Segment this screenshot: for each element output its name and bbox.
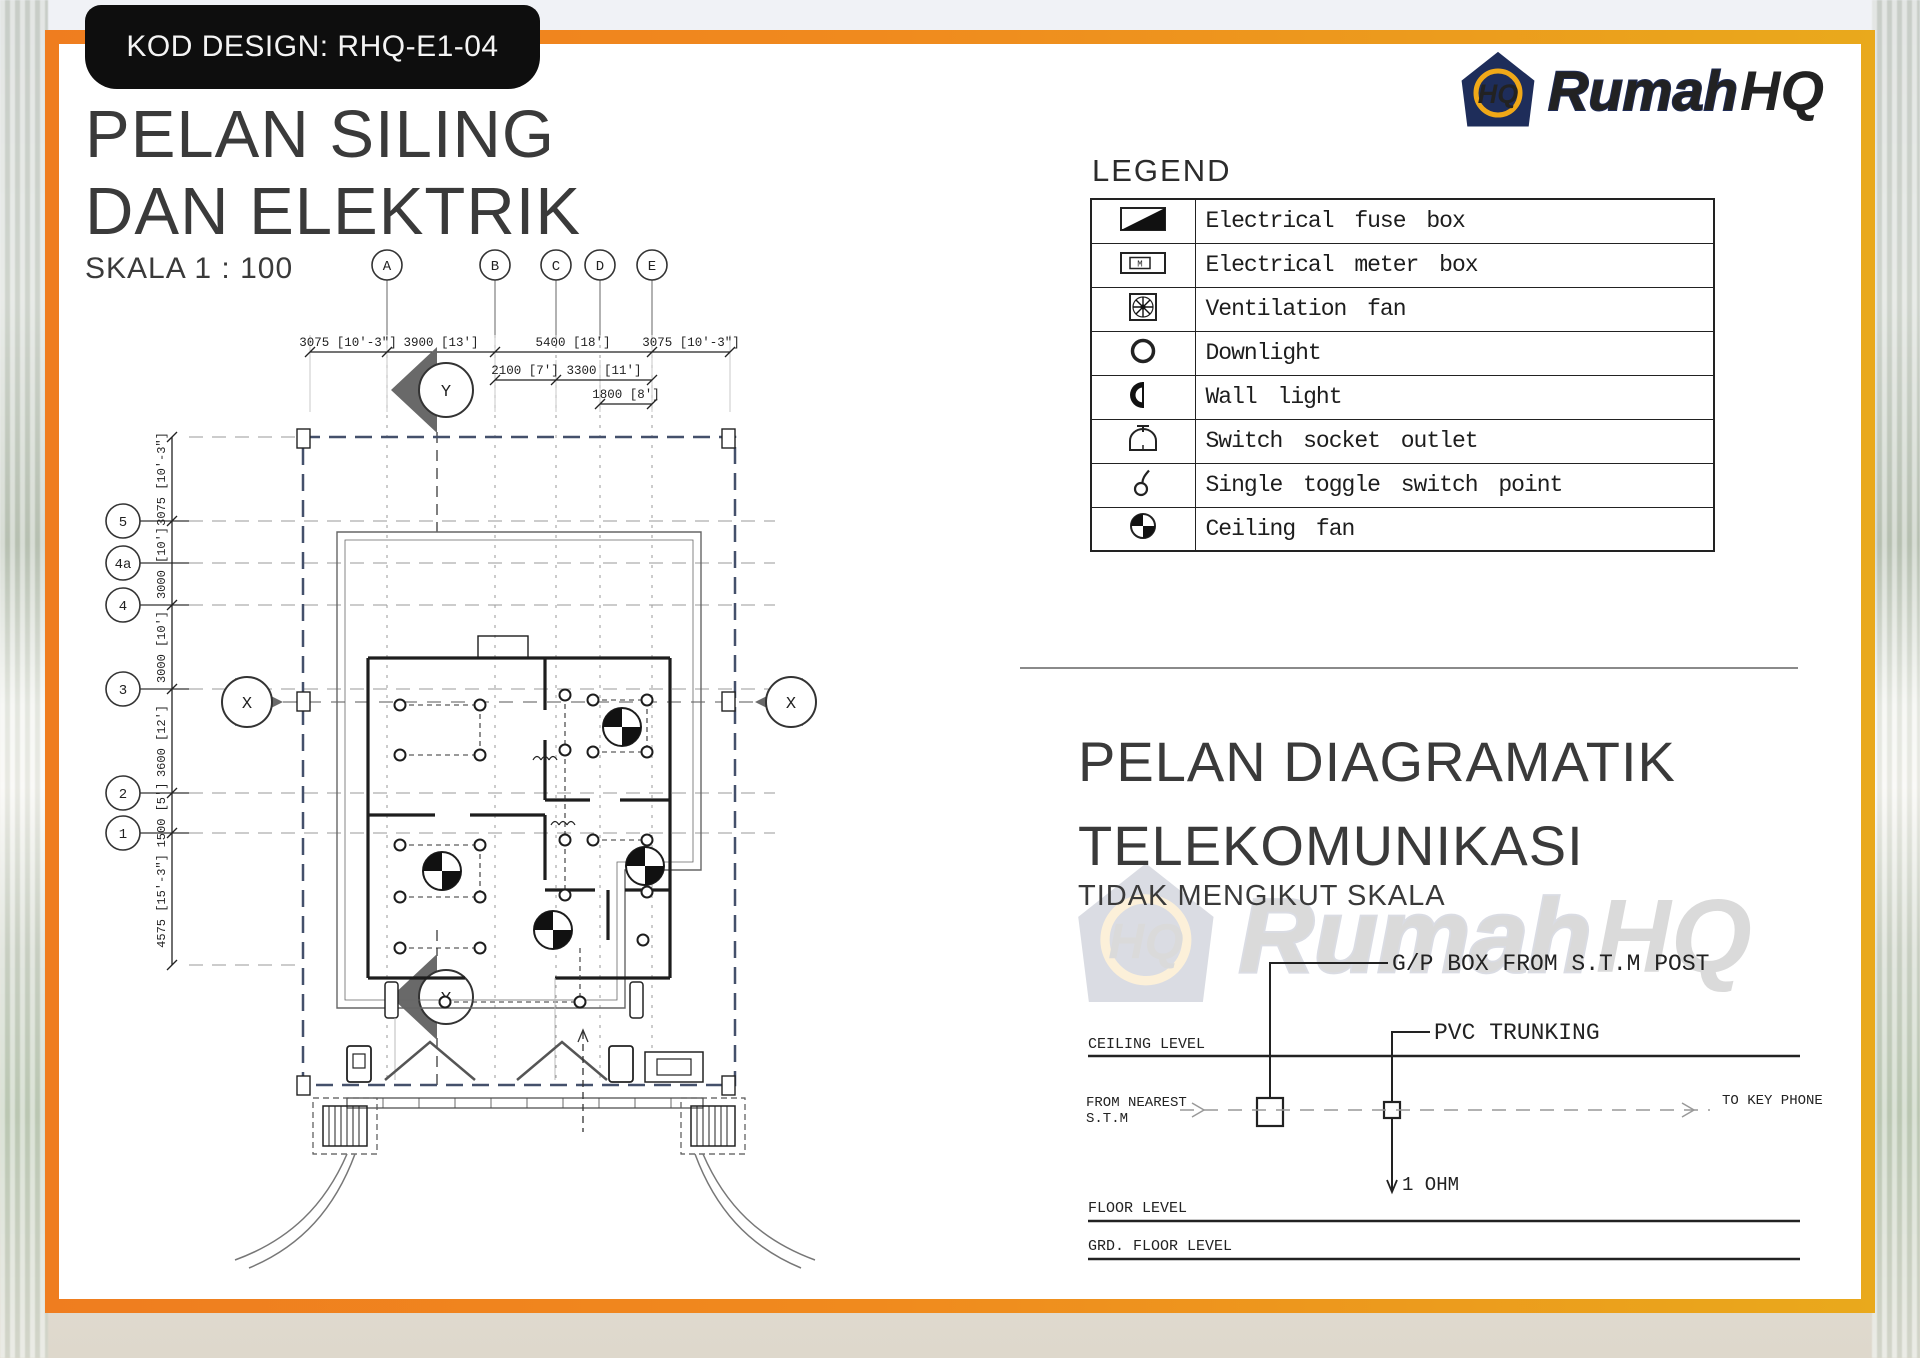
ventilation-fan-icon	[1115, 291, 1171, 323]
pvc-trunking-label: PVC TRUNKING	[1434, 1020, 1600, 1046]
drain-grilles	[313, 1098, 745, 1154]
column-marker-e: E	[648, 259, 656, 275]
driveway-curves	[235, 1154, 815, 1268]
legend-row: Switch socket outlet	[1091, 419, 1714, 463]
legend-label: Ventilation fan	[1195, 287, 1714, 331]
telecom-diagram: G/P BOX FROM S.T.M POST PVC TRUNKING CEI…	[1070, 940, 1830, 1280]
column-marker-d: D	[596, 259, 604, 275]
telecom-subtitle: TIDAK MENGIKUT SKALA	[1078, 880, 1446, 913]
svg-text:Y: Y	[441, 383, 451, 402]
legend-row: Ceiling fan	[1091, 507, 1714, 551]
switch-socket-outlet-icon	[1115, 423, 1171, 455]
svg-text:3000 [10']: 3000 [10']	[155, 611, 169, 683]
logo-icon-text: HQ	[1478, 79, 1519, 109]
gp-box	[1257, 1098, 1283, 1126]
legend-table: Electrical fuse box M Electrical meter b…	[1090, 198, 1715, 552]
svg-text:3000 [10']: 3000 [10']	[155, 527, 169, 599]
gate	[347, 1030, 703, 1132]
to-key-phone-label: TO KEY PHONE	[1722, 1093, 1823, 1109]
legend-label: Electrical fuse box	[1195, 199, 1714, 243]
row-marker-2: 2	[119, 787, 127, 803]
gate-track	[347, 1098, 703, 1108]
legend-row: Wall light	[1091, 375, 1714, 419]
ceiling-fan-symbol	[603, 708, 641, 746]
design-code-label: KOD DESIGN: RHQ-E1-04	[126, 30, 498, 64]
legend-row: Electrical fuse box	[1091, 199, 1714, 243]
column-marker-a: A	[383, 259, 392, 275]
page-title-line1: PELAN SILING	[85, 96, 581, 173]
telecom-title: PELAN DIAGRAMATIK TELEKOMUNIKASI	[1078, 720, 1676, 888]
telecom-title-line2: TELEKOMUNIKASI	[1078, 804, 1676, 888]
background-photo-left	[0, 0, 48, 1358]
ceiling-fan-symbol	[626, 847, 664, 885]
design-code-badge: KOD DESIGN: RHQ-E1-04	[85, 5, 540, 89]
electrical-meter-box-icon: M	[1115, 247, 1171, 279]
grd-floor-level-label: GRD. FLOOR LEVEL	[1088, 1238, 1232, 1255]
legend-label: Wall light	[1195, 375, 1714, 419]
column-markers: A B C D E	[372, 250, 667, 335]
column-marker-b: B	[491, 259, 499, 275]
page-title-line2: DAN ELEKTRIK	[85, 173, 581, 250]
svg-text:3075 [10'-3"]: 3075 [10'-3"]	[642, 336, 740, 350]
from-nearest-label-2: S.T.M	[1086, 1111, 1128, 1127]
section-divider	[1020, 667, 1798, 669]
row-marker-3: 3	[119, 683, 127, 699]
ceiling-fan-symbol	[423, 852, 461, 890]
svg-text:3075 [10'-3"]: 3075 [10'-3"]	[155, 432, 169, 526]
wall-light-icon	[1115, 379, 1171, 411]
legend-label: Downlight	[1195, 331, 1714, 375]
svg-text:3300 [11']: 3300 [11']	[566, 364, 641, 378]
legend-row: Downlight	[1091, 331, 1714, 375]
svg-text:3600 [12']: 3600 [12']	[155, 705, 169, 777]
svg-text:X: X	[786, 695, 796, 714]
svg-text:4575 [15'-3"]: 4575 [15'-3"]	[155, 854, 169, 948]
legend-heading: LEGEND	[1092, 153, 1231, 189]
section-markers: Y Y X X	[222, 347, 816, 1085]
legend-row: M Electrical meter box	[1091, 243, 1714, 287]
ceiling-fan-symbol	[534, 911, 572, 949]
logo-text-hq: HQ	[1740, 59, 1824, 122]
section-marker-x-left: X	[222, 677, 283, 727]
legend-label: Ceiling fan	[1195, 507, 1714, 551]
gp-box-label: G/P BOX FROM S.T.M POST	[1392, 951, 1709, 977]
svg-text:3075 [10'-3"]: 3075 [10'-3"]	[299, 336, 397, 350]
floor-level-label: FLOOR LEVEL	[1088, 1200, 1187, 1217]
left-dimensions: 3075 [10'-3"] 3000 [10'] 3000 [10'] 3600…	[155, 432, 177, 970]
svg-text:3900 [13']: 3900 [13']	[403, 336, 478, 350]
row-markers: 5 4a 4 3 2 1	[106, 504, 189, 850]
legend-label: Switch socket outlet	[1195, 419, 1714, 463]
svg-text:X: X	[242, 695, 252, 714]
downlight-icon	[1115, 335, 1171, 367]
column-marker-c: C	[552, 259, 560, 275]
gate-meter-box	[645, 1052, 703, 1082]
background-photo-right	[1872, 0, 1920, 1358]
svg-text:5400 [18']: 5400 [18']	[535, 336, 610, 350]
section-marker-y-top: Y	[391, 347, 473, 433]
rumahhq-logo: HQ Rumah HQ	[1452, 42, 1882, 134]
top-dimensions: 3075 [10'-3"] 3900 [13'] 5400 [18'] 3075…	[299, 335, 740, 412]
section-marker-y-bottom: Y	[391, 954, 473, 1040]
row-marker-5: 5	[119, 515, 127, 531]
page-title: PELAN SILING DAN ELEKTRIK	[85, 96, 581, 250]
single-toggle-switch-icon	[1115, 467, 1171, 499]
svg-text:1800 [8']: 1800 [8']	[592, 388, 660, 402]
from-nearest-label-1: FROM NEAREST	[1086, 1095, 1187, 1111]
legend-row: Ventilation fan	[1091, 287, 1714, 331]
legend-label: Single toggle switch point	[1195, 463, 1714, 507]
floor-plan: A B C D E 3075 [10'-3"] 3900 [13'] 5400 …	[85, 240, 945, 1320]
svg-text:1500 [5']: 1500 [5']	[155, 783, 169, 848]
legend-row: Single toggle switch point	[1091, 463, 1714, 507]
svg-text:M: M	[1138, 259, 1143, 269]
section-marker-x-right: X	[755, 677, 816, 727]
row-marker-4: 4	[119, 599, 127, 615]
row-marker-4a: 4a	[115, 557, 132, 573]
ceiling-level-label: CEILING LEVEL	[1088, 1036, 1205, 1053]
legend-label: Electrical meter box	[1195, 243, 1714, 287]
ceiling-fan-icon	[1115, 510, 1171, 542]
ohm-label: 1 OHM	[1402, 1174, 1459, 1196]
row-marker-1: 1	[119, 827, 127, 843]
logo-text-rumah: Rumah	[1548, 59, 1738, 122]
telecom-title-line1: PELAN DIAGRAMATIK	[1078, 720, 1676, 804]
electrical-fuse-box-icon	[1115, 203, 1171, 235]
svg-text:2100 [7']: 2100 [7']	[491, 364, 559, 378]
